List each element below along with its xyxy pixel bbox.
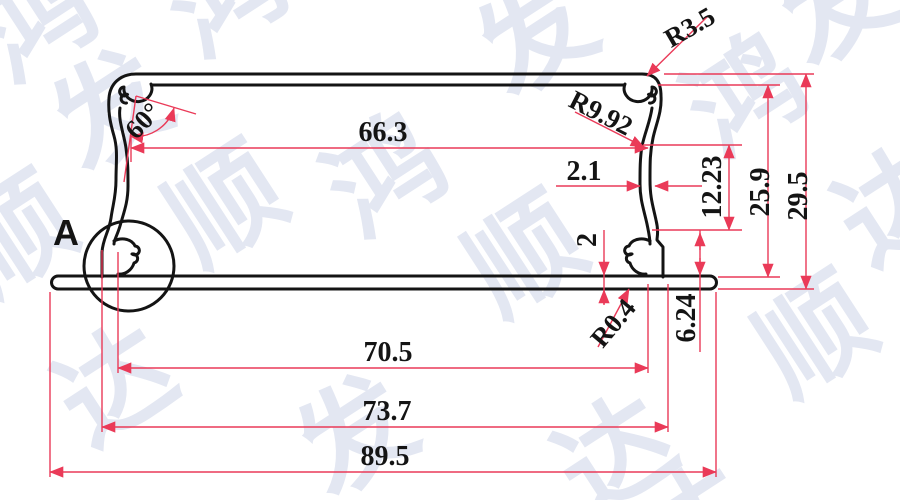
dim-base-fillet-radius: R0.4 (584, 293, 641, 353)
dim-top-corner-radius: R3.5 (659, 1, 720, 54)
cad-drawing-page: { "watermark": { "characters": ["鸿", "发"… (0, 0, 900, 500)
detail-circle-a (84, 221, 174, 311)
dim-wall-thickness: 2.1 (567, 156, 602, 187)
screw-boss-top-right (624, 84, 656, 103)
dim-overall-height: 29.5 (783, 172, 814, 221)
dim-cavity-height: 25.9 (745, 168, 776, 217)
dim-inner-top-width: 66.3 (359, 117, 408, 148)
dim-inner-curve-radius: R9.92 (564, 84, 637, 141)
dim-inner-base-width: 70.5 (364, 337, 413, 368)
screw-boss-bottom-right (625, 239, 650, 274)
detail-label: A (53, 212, 79, 253)
dim-overall-width: 89.5 (361, 441, 410, 472)
base-plate (52, 276, 717, 289)
dim-recess-height: 12.23 (697, 156, 728, 219)
dim-base-thickness: 2 (572, 233, 603, 247)
dim-outer-wall-width: 73.7 (363, 396, 412, 427)
dim-boss-step-height: 6.24 (671, 294, 702, 343)
extrusion-profile-drawing: 66.3 2.1 60° R3.5 R9.92 12.23 25.9 29.5 … (0, 0, 900, 500)
